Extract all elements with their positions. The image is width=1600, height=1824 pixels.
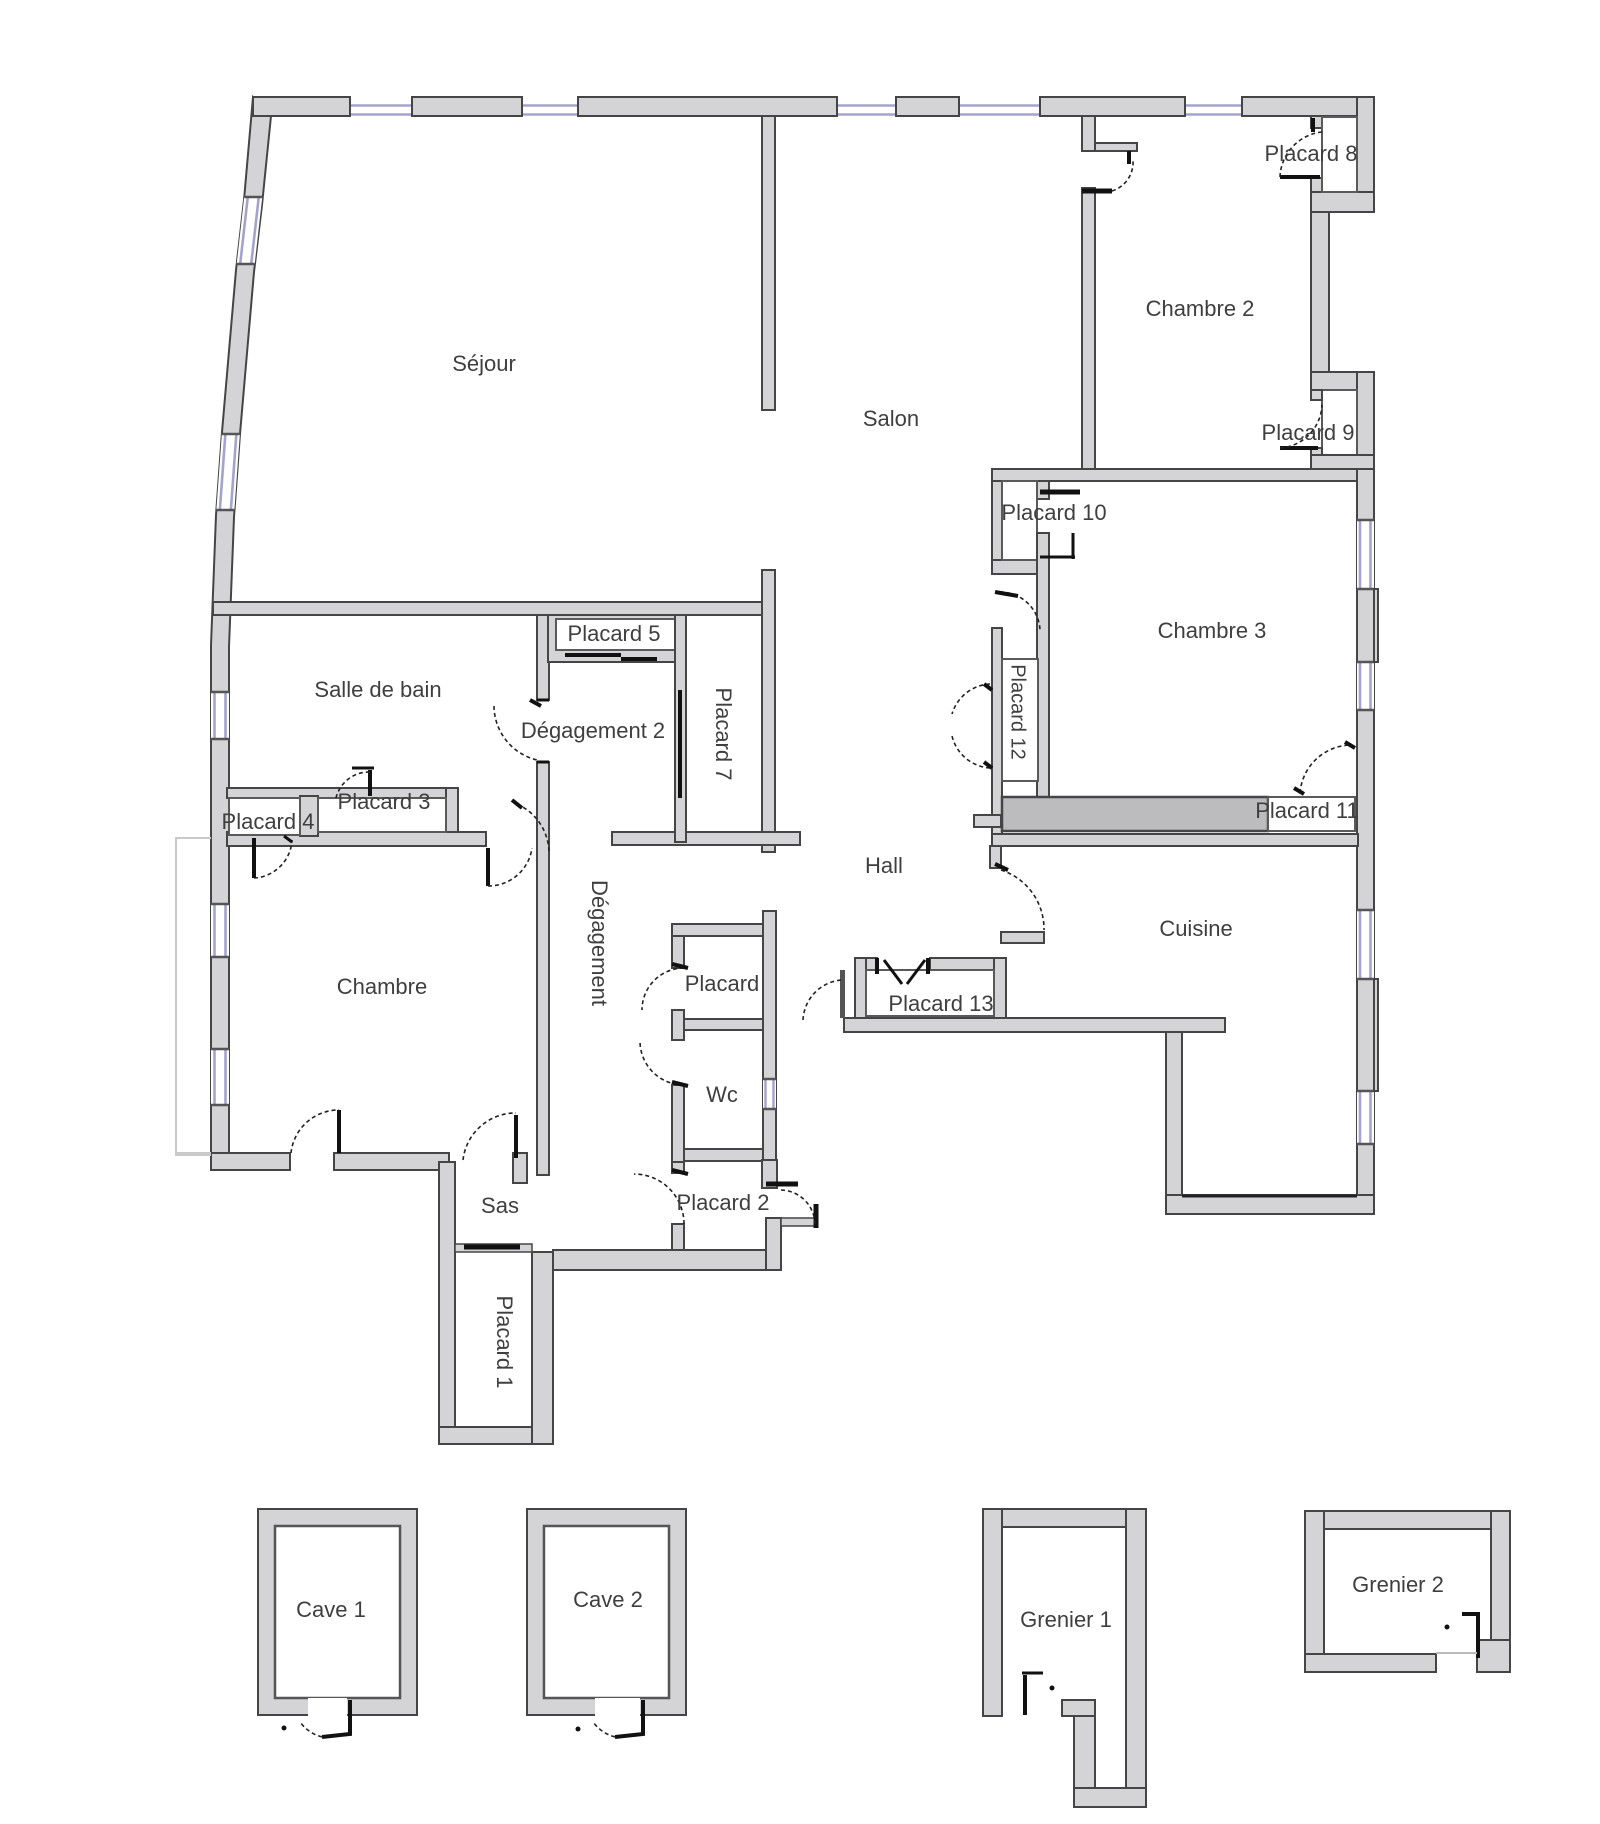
svg-text:Dégagement: Dégagement: [587, 880, 612, 1006]
svg-text:Cave 2: Cave 2: [573, 1587, 643, 1612]
svg-text:Placard 5: Placard 5: [568, 621, 661, 646]
svg-text:Placard 2: Placard 2: [677, 1190, 770, 1215]
svg-text:Wc: Wc: [706, 1082, 738, 1107]
svg-text:Placard 10: Placard 10: [1001, 500, 1106, 525]
svg-text:Chambre: Chambre: [337, 974, 427, 999]
svg-text:Placard 3: Placard 3: [338, 789, 431, 814]
svg-text:Placard 13: Placard 13: [888, 991, 993, 1016]
svg-text:Séjour: Séjour: [452, 351, 516, 376]
svg-text:Chambre 3: Chambre 3: [1158, 618, 1267, 643]
svg-text:Placard 9: Placard 9: [1262, 420, 1355, 445]
svg-text:Grenier 1: Grenier 1: [1020, 1607, 1112, 1632]
svg-text:Cave 1: Cave 1: [296, 1597, 366, 1622]
svg-text:Placard 11: Placard 11: [1255, 798, 1359, 823]
svg-text:Grenier 2: Grenier 2: [1352, 1572, 1444, 1597]
svg-text:Salle de bain: Salle de bain: [314, 677, 441, 702]
svg-text:Placard 1: Placard 1: [492, 1296, 517, 1389]
svg-text:Cuisine: Cuisine: [1159, 916, 1232, 941]
svg-text:Hall: Hall: [865, 853, 903, 878]
svg-text:Sas: Sas: [481, 1193, 519, 1218]
svg-text:Placard 12: Placard 12: [1007, 664, 1029, 760]
svg-text:Placard 7: Placard 7: [711, 688, 736, 781]
svg-text:Dégagement 2: Dégagement 2: [521, 718, 665, 743]
svg-text:Placard 8: Placard 8: [1265, 141, 1358, 166]
svg-text:Placard 4: Placard 4: [222, 809, 315, 834]
svg-text:Placard: Placard: [685, 971, 760, 996]
svg-text:Chambre 2: Chambre 2: [1146, 296, 1255, 321]
svg-text:Salon: Salon: [863, 406, 919, 431]
